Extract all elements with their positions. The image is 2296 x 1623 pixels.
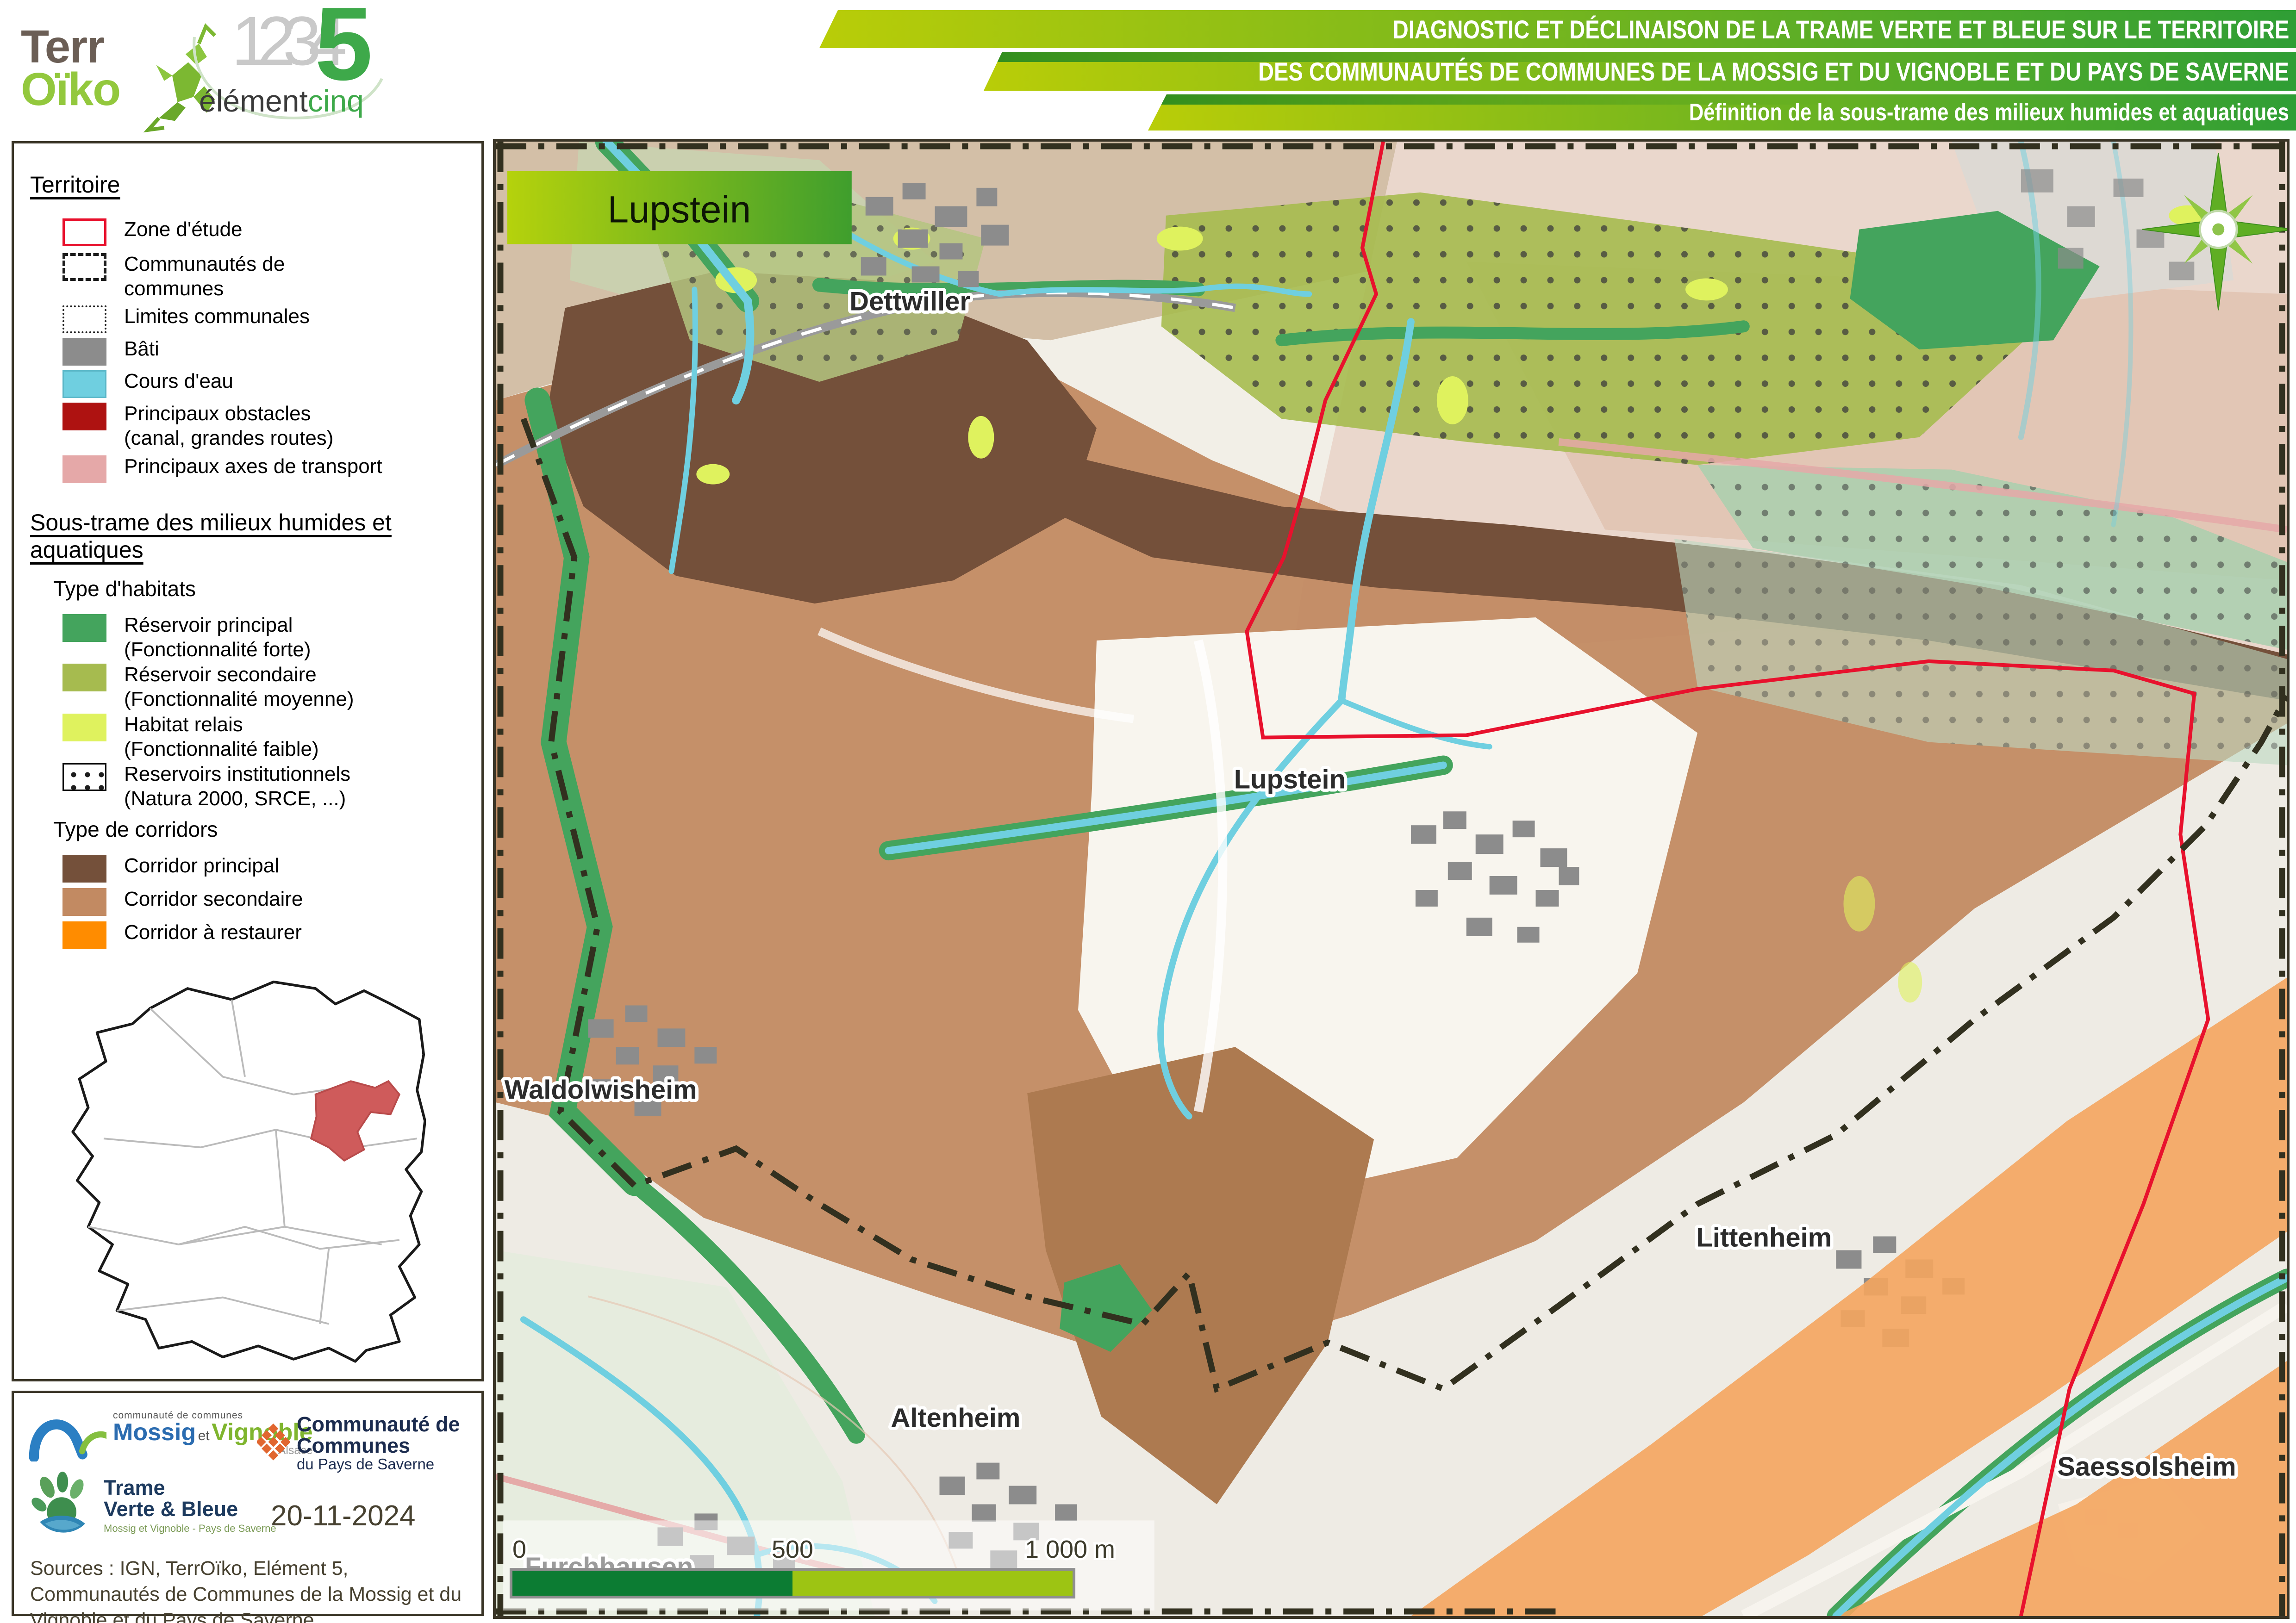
map-svg: Lupstein Dettwiller Lupstein Waldolwishe… bbox=[496, 142, 2287, 1616]
tvb-name-2: Verte & Bleue bbox=[104, 1499, 276, 1520]
legend-item-zone-etude: Zone d'étude bbox=[62, 218, 470, 246]
title-banner-3-text: Définition de la sous-trame des milieux … bbox=[1689, 99, 2296, 126]
zone-etude-swatch bbox=[62, 218, 106, 246]
legend-item-limites: Limites communales bbox=[62, 305, 470, 333]
legend-item-communautes: Communautés de communes bbox=[62, 252, 470, 301]
legend-item-corridor-restaurer: Corridor à restaurer bbox=[62, 920, 470, 949]
legend-soustrame-title: Sous-trame des milieux humides et aquati… bbox=[30, 509, 447, 564]
saverne-diamonds-icon bbox=[257, 1411, 290, 1475]
locator-inset-map bbox=[46, 960, 426, 1368]
town-label-lupstein: Lupstein bbox=[1234, 765, 1346, 794]
element-word: élément bbox=[199, 84, 308, 118]
legend-item-corridor-secondaire: Corridor secondaire bbox=[62, 887, 470, 916]
map-title-text: Lupstein bbox=[608, 189, 751, 231]
town-label-dettwiller: Dettwiller bbox=[849, 286, 970, 316]
legend-corridors-title: Type de corridors bbox=[53, 817, 218, 842]
legend-label: Cours d'eau bbox=[124, 369, 233, 394]
credits-panel: communauté de communes Mossig et Vignobl… bbox=[12, 1391, 484, 1616]
corridor-principal-swatch bbox=[62, 855, 106, 883]
terroiko-logo: Terr Oïko bbox=[21, 25, 120, 111]
cours-eau-swatch bbox=[62, 370, 106, 398]
town-label-saessolsheim: Saessolsheim bbox=[2057, 1452, 2236, 1482]
element-cinq-logo: 1234 5 élémentcinq bbox=[199, 9, 380, 134]
legend-label: Corridor à restaurer bbox=[124, 920, 302, 945]
legend-habitats-title: Type d'habitats bbox=[53, 576, 196, 601]
tvb-paw-icon bbox=[28, 1471, 97, 1540]
legend-panel: Territoire Zone d'étude Communautés de c… bbox=[12, 141, 484, 1381]
saverne-subname: du Pays de Saverne bbox=[297, 1456, 481, 1472]
mossig-et: et bbox=[198, 1428, 210, 1443]
legend-label: Corridor principal bbox=[124, 854, 279, 878]
map-date: 20-11-2024 bbox=[271, 1499, 416, 1532]
legend-label: Reservoirs institutionnels (Natura 2000,… bbox=[124, 762, 350, 811]
terroiko-logo-terr: Terr bbox=[21, 25, 120, 68]
legend-item-obstacles: Principaux obstacles (canal, grandes rou… bbox=[62, 402, 470, 451]
title-banner-3: Définition de la sous-trame des milieux … bbox=[1148, 94, 2296, 131]
axes-swatch bbox=[62, 455, 106, 483]
obstacles-swatch bbox=[62, 403, 106, 430]
legend-label: Principaux obstacles (canal, grandes rou… bbox=[124, 402, 333, 451]
scale-label-start: 0 bbox=[512, 1536, 526, 1563]
scale-bar: Furchhausen 0 500 1 000 m bbox=[503, 1520, 1154, 1611]
title-banner-2: DES COMMUNAUTÉS DE COMMUNES DE LA MOSSIG… bbox=[984, 52, 2296, 91]
town-label-waldolwisheim: Waldolwisheim bbox=[505, 1075, 697, 1105]
reservoir-principal-swatch bbox=[62, 614, 106, 642]
legend-item-bati: Bâti bbox=[62, 337, 470, 366]
legend-item-cours-eau: Cours d'eau bbox=[62, 369, 470, 398]
legend-label: Principaux axes de transport bbox=[124, 454, 382, 479]
corridor-secondaire-swatch bbox=[62, 888, 106, 916]
tvb-name-1: Trame bbox=[104, 1477, 276, 1499]
sources-text: Sources : IGN, TerrOïko, Elément 5, Comm… bbox=[30, 1556, 470, 1623]
town-label-altenheim: Altenheim bbox=[891, 1403, 1021, 1433]
tvb-subtitle: Mossig et Vignoble - Pays de Saverne bbox=[104, 1524, 276, 1534]
bati-swatch bbox=[62, 338, 106, 366]
scale-label-mid: 500 bbox=[772, 1536, 813, 1563]
title-banner-2-text: DES COMMUNAUTÉS DE COMMUNES DE LA MOSSIG… bbox=[1258, 56, 2296, 87]
title-banner-1: DIAGNOSTIC ET DÉCLINAISON DE LA TRAME VE… bbox=[819, 10, 2296, 48]
legend-label: Réservoir secondaire (Fonctionnalité moy… bbox=[124, 663, 354, 712]
map-sheet: Terr Oïko 1234 5 élémentcinq DIAGNOSTIC … bbox=[0, 0, 2296, 1623]
pays-de-saverne-logo: Communauté de Communes du Pays de Savern… bbox=[257, 1411, 481, 1475]
mossig-m-icon bbox=[28, 1406, 106, 1461]
scale-segment-1 bbox=[512, 1571, 792, 1596]
scale-segment-2 bbox=[792, 1571, 1073, 1596]
legend-item-reservoirs-institutionnels: Reservoirs institutionnels (Natura 2000,… bbox=[62, 762, 470, 811]
legend-label: Réservoir principal (Fonctionnalité fort… bbox=[124, 613, 311, 662]
legend-label: Communautés de communes bbox=[124, 252, 285, 301]
town-label-littenheim: Littenheim bbox=[1696, 1223, 1832, 1253]
map-canvas: Lupstein Dettwiller Lupstein Waldolwishe… bbox=[493, 139, 2290, 1619]
legend-item-reservoir-secondaire: Réservoir secondaire (Fonctionnalité moy… bbox=[62, 663, 470, 712]
saverne-name: Communauté de Communes bbox=[297, 1414, 481, 1456]
legend-label: Bâti bbox=[124, 337, 159, 361]
legend-item-corridor-principal: Corridor principal bbox=[62, 854, 470, 883]
habitat-relais-swatch bbox=[62, 714, 106, 741]
legend-territoire-title: Territoire bbox=[30, 171, 447, 199]
cinq-word: cinq bbox=[308, 84, 364, 118]
legend-label: Limites communales bbox=[124, 305, 310, 329]
legend-item-axes: Principaux axes de transport bbox=[62, 454, 470, 483]
limites-swatch bbox=[62, 305, 106, 333]
title-banner-1-text: DIAGNOSTIC ET DÉCLINAISON DE LA TRAME VE… bbox=[1392, 14, 2296, 44]
legend-label: Corridor secondaire bbox=[124, 887, 303, 912]
terroiko-logo-oiko: Oïko bbox=[21, 68, 120, 111]
legend-item-reservoir-principal: Réservoir principal (Fonctionnalité fort… bbox=[62, 613, 470, 662]
trame-verte-bleue-logo: Trame Verte & Bleue Mossig et Vignoble -… bbox=[28, 1471, 276, 1540]
communautes-swatch bbox=[62, 253, 106, 281]
reservoir-secondaire-swatch bbox=[62, 664, 106, 691]
legend-label: Zone d'étude bbox=[124, 218, 243, 242]
corridor-restaurer-swatch bbox=[62, 921, 106, 949]
reservoirs-institutionnels-swatch bbox=[62, 763, 106, 791]
mossig-name: Mossig bbox=[113, 1419, 196, 1446]
legend-label: Habitat relais (Fonctionnalité faible) bbox=[124, 713, 319, 762]
legend-item-habitat-relais: Habitat relais (Fonctionnalité faible) bbox=[62, 713, 470, 762]
map-title-box: Lupstein bbox=[507, 171, 852, 244]
element-cinq-wordmark: élémentcinq bbox=[199, 83, 364, 118]
scale-label-end: 1 000 m bbox=[1025, 1536, 1115, 1563]
